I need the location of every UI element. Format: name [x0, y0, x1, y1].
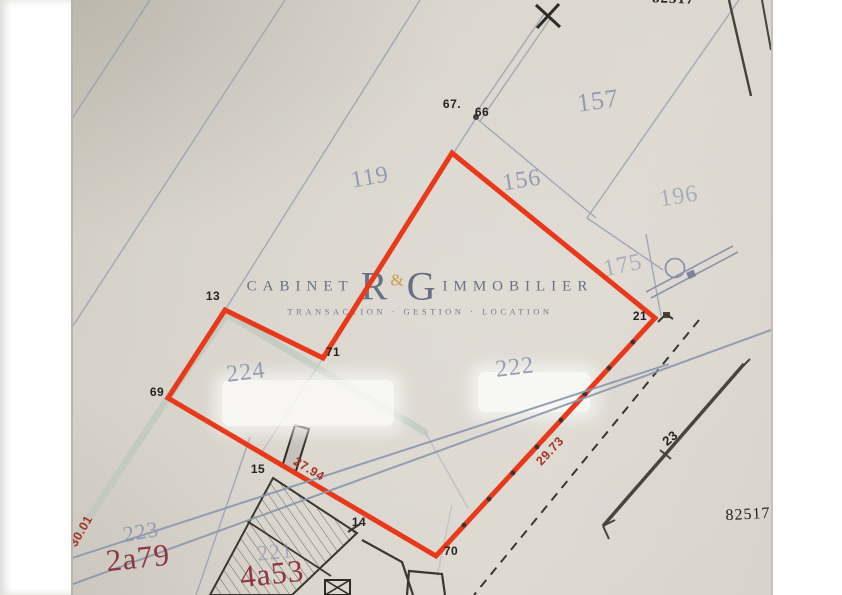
point-label-70: 70 — [444, 544, 458, 558]
area-label-4a53: 4a53 — [238, 553, 306, 595]
parcel-label-222: 222 — [494, 352, 536, 384]
parcel-label-157: 157 — [575, 83, 621, 119]
area-label-2a79: 2a79 — [104, 537, 172, 580]
point-label-14: 14 — [352, 515, 366, 529]
point-21-tick — [658, 312, 673, 322]
point-label-21: 21 — [633, 309, 647, 323]
point-label-13: 13 — [206, 289, 220, 303]
plan-red-overlay — [0, 0, 842, 595]
plan-number-82517: 82517 — [725, 505, 771, 525]
cadastral-plan-photo: CABINET R & G IMMOBILIER TRANSACTION · G… — [0, 0, 842, 595]
plan-number-top-partial: 82517 — [652, 0, 714, 8]
point-label-67: 67. — [443, 97, 461, 111]
photo-white-margin-left — [0, 0, 71, 595]
parcel-label-224: 224 — [225, 357, 267, 389]
point-label-71: 71 — [326, 345, 340, 359]
point-label-15: 15 — [251, 462, 265, 476]
point-label-69: 69 — [150, 385, 164, 399]
point-label-66: 66 — [475, 105, 489, 119]
photo-white-margin-right — [773, 0, 842, 595]
